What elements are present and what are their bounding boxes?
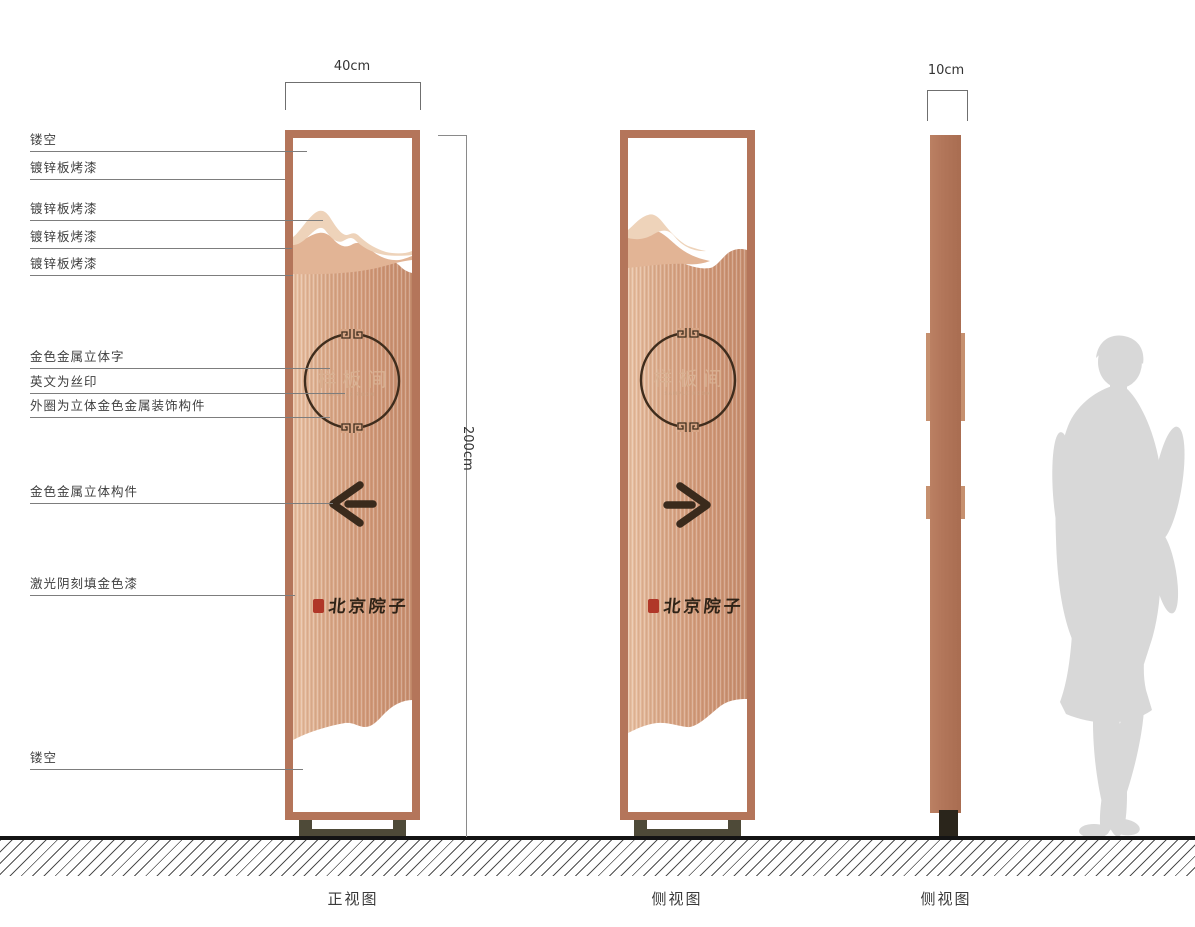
callout-outer-ring: 外圈为立体金色金属装饰构件	[30, 398, 330, 418]
callout-label: 镀锌板烤漆	[30, 160, 285, 176]
callout-line	[30, 151, 307, 152]
callout-label: 金色金属立体构件	[30, 484, 333, 500]
view-title-front: 正视图	[308, 888, 398, 909]
signage-design-sheet: 镂空 镀锌板烤漆 镀锌板烤漆 镀锌板烤漆 镀锌板烤漆 金色金属立体字 英文为丝印…	[0, 0, 1195, 927]
callout-line	[30, 248, 292, 249]
callout-label: 外圈为立体金色金属装饰构件	[30, 398, 330, 414]
ground-line	[0, 836, 1195, 840]
callout-line	[30, 393, 345, 394]
room-name-text: 样板间	[653, 368, 728, 390]
callout-line	[30, 503, 333, 504]
callout-label: 镀锌板烤漆	[30, 201, 323, 217]
front-panel-graphic: 样板间 SAMPLE ROOM 北京院子	[293, 138, 412, 812]
profile-sign-foot	[939, 810, 958, 838]
callout-label: 镂空	[30, 132, 307, 148]
callout-line	[30, 220, 323, 221]
front-view-sign: 样板间 SAMPLE ROOM 北京院子	[285, 130, 420, 820]
dim-bracket-40cm	[285, 82, 421, 110]
dim-height-line	[466, 135, 467, 837]
callout-line	[30, 417, 330, 418]
fret-ornament-bottom	[677, 422, 699, 432]
callout-label: 镂空	[30, 750, 303, 766]
brand-name-text: 北京院子	[328, 596, 410, 617]
callout-gold-component: 金色金属立体构件	[30, 484, 333, 504]
view-title-side2: 侧视图	[901, 888, 991, 909]
callout-laser-engrave: 激光阴刻填金色漆	[30, 576, 295, 596]
view-title-side1: 侧视图	[632, 888, 722, 909]
callout-paint-1: 镀锌板烤漆	[30, 160, 285, 180]
callout-line	[30, 179, 285, 180]
callout-paint-2: 镀锌板烤漆	[30, 201, 323, 221]
dim-front-width: 40cm	[312, 59, 392, 74]
callout-hollow-bottom: 镂空	[30, 750, 303, 770]
callout-label: 金色金属立体字	[30, 349, 330, 365]
dim-bracket-10cm	[927, 90, 968, 121]
dim-sign-height: 200cm	[460, 426, 475, 471]
fret-ornament-bottom	[341, 423, 363, 433]
fret-ornament-top	[677, 328, 699, 338]
callout-paint-4: 镀锌板烤漆	[30, 256, 293, 276]
ground-hatch	[0, 840, 1195, 876]
callout-line	[30, 368, 330, 369]
callout-label: 镀锌板烤漆	[30, 229, 292, 245]
callout-label: 英文为丝印	[30, 374, 345, 390]
profile-view-sign	[930, 135, 961, 813]
brand-seal-icon	[313, 599, 324, 613]
brand-seal-icon	[648, 599, 659, 613]
callout-silkscreen: 英文为丝印	[30, 374, 345, 394]
callout-hollow-top: 镂空	[30, 132, 307, 152]
callout-line	[30, 769, 303, 770]
dim-side-width: 10cm	[906, 63, 986, 78]
callout-line	[30, 595, 295, 596]
callout-label: 激光阴刻填金色漆	[30, 576, 295, 592]
fret-ornament-top	[341, 329, 363, 339]
dim-height-tick	[438, 135, 466, 136]
person-silhouette	[1032, 334, 1195, 840]
side-view-sign: 样板间 SAMPLE ROOM 北京院子	[620, 130, 755, 820]
side-panel-graphic: 样板间 SAMPLE ROOM 北京院子	[628, 138, 747, 812]
callout-label: 镀锌板烤漆	[30, 256, 293, 272]
room-name-en-text: SAMPLE ROOM	[665, 391, 712, 397]
brand-name-text: 北京院子	[663, 596, 745, 617]
callout-gold-letters: 金色金属立体字	[30, 349, 330, 369]
callout-paint-3: 镀锌板烤漆	[30, 229, 292, 249]
callout-line	[30, 275, 293, 276]
